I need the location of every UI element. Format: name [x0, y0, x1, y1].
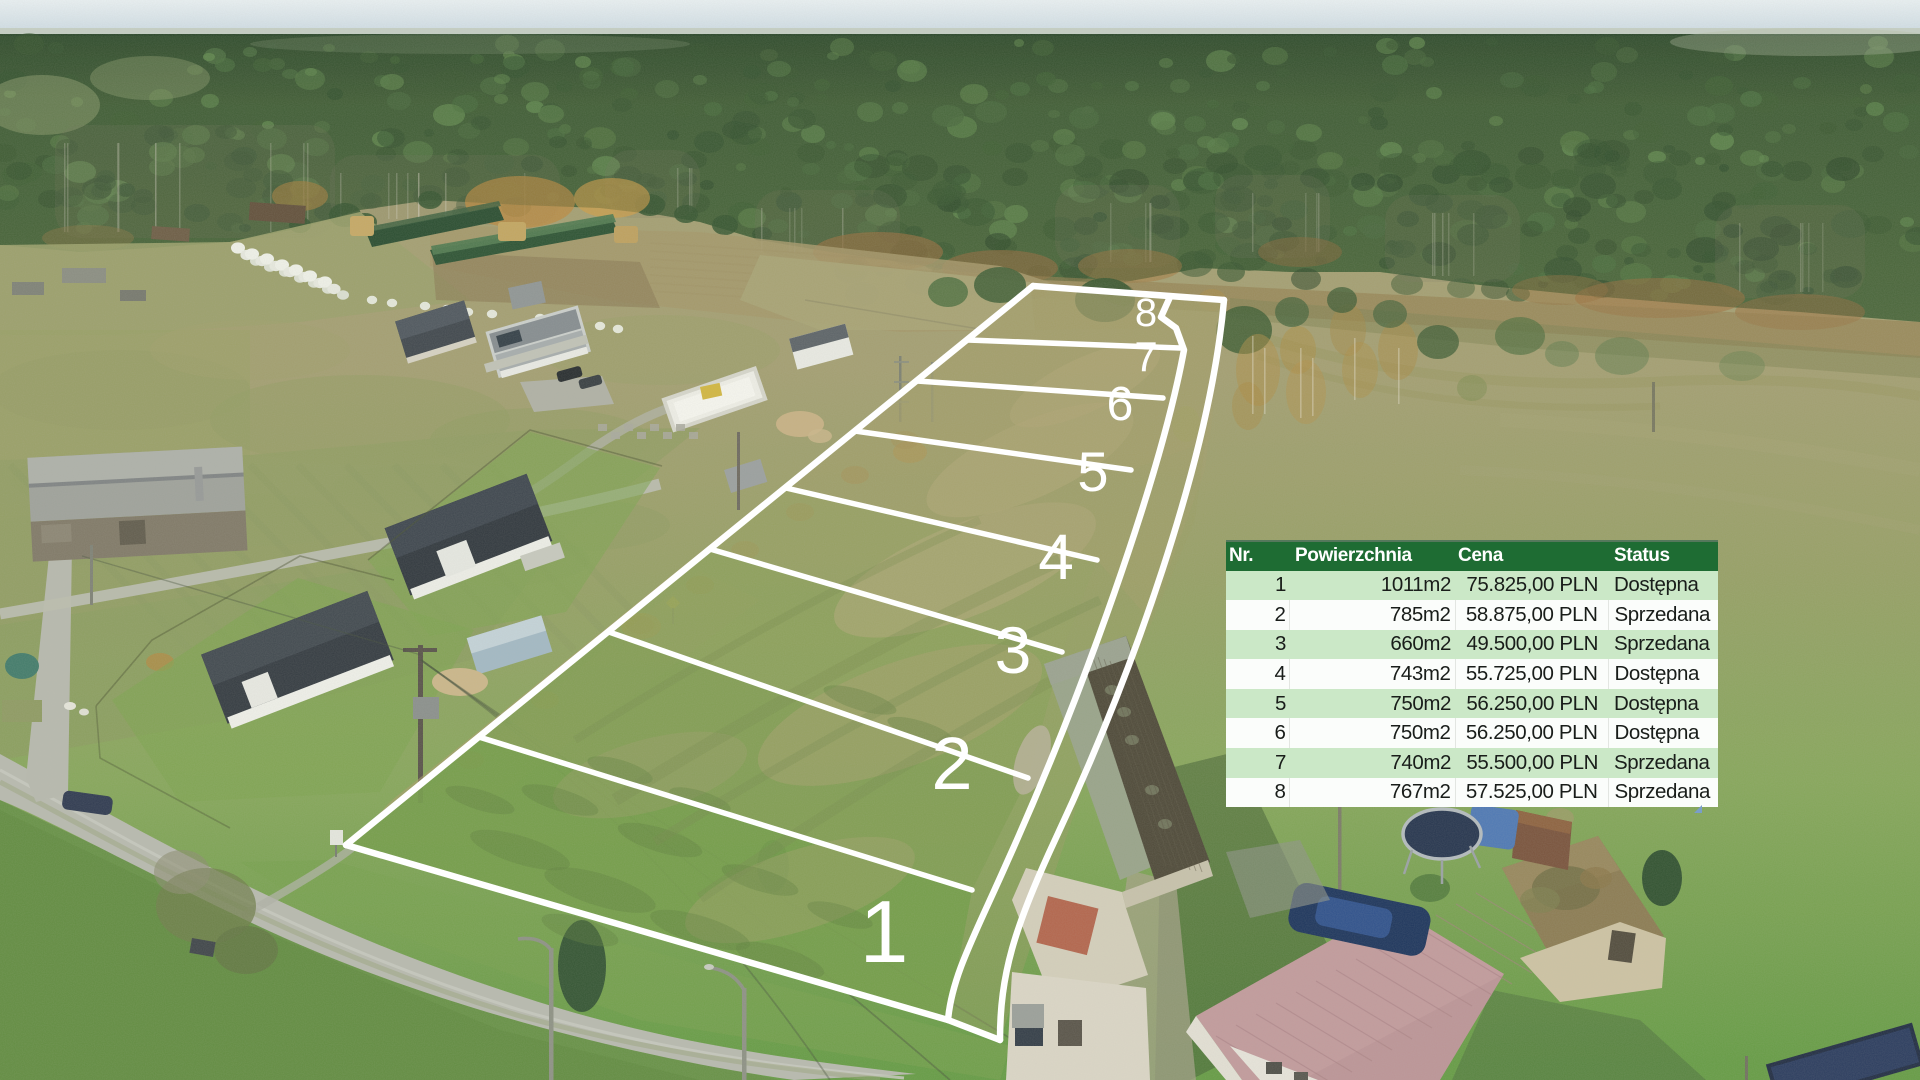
- svg-text:5: 5: [1077, 440, 1108, 503]
- svg-text:7: 7: [1134, 333, 1157, 380]
- svg-text:3: 3: [995, 613, 1032, 687]
- svg-text:6: 6: [1107, 378, 1134, 431]
- svg-text:2: 2: [931, 722, 972, 805]
- svg-text:1: 1: [860, 882, 909, 981]
- svg-text:8: 8: [1135, 291, 1157, 335]
- svg-text:4: 4: [1038, 521, 1074, 593]
